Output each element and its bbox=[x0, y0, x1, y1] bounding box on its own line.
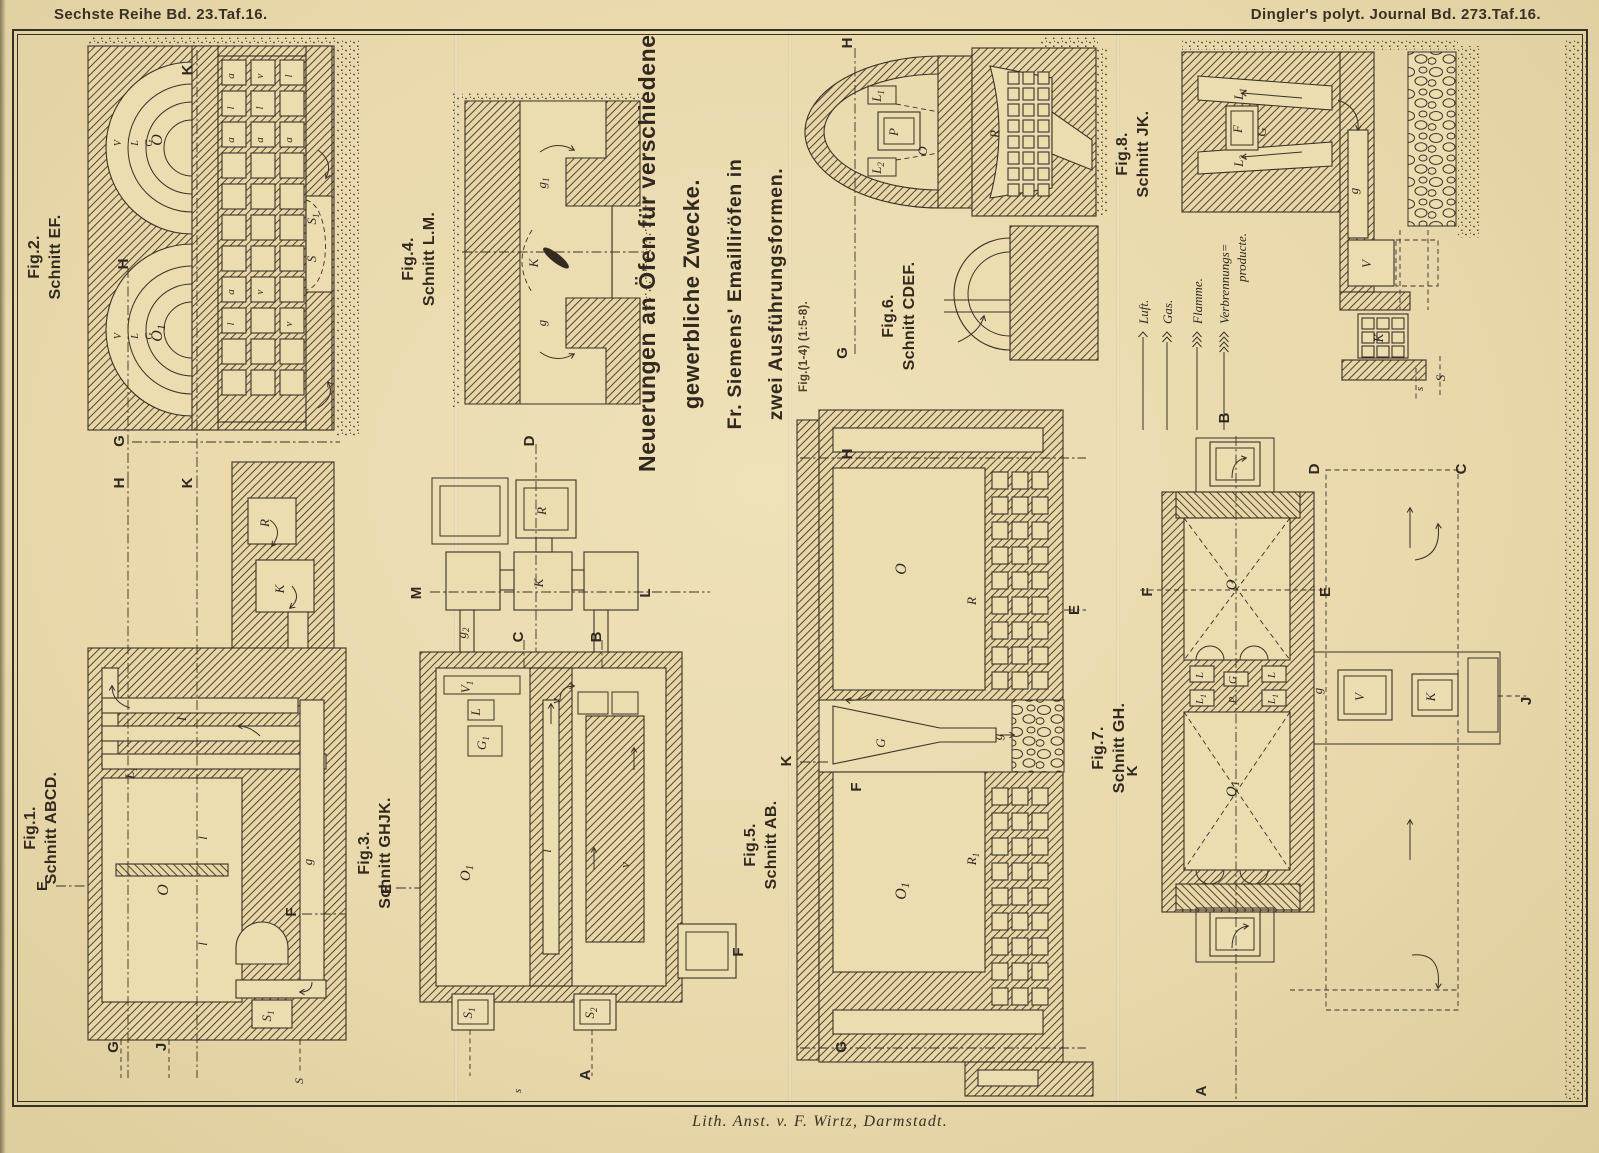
flow-arrow-barb bbox=[1220, 337, 1229, 342]
plate-letter: L bbox=[130, 333, 141, 340]
plate-letter: F bbox=[848, 782, 865, 791]
plate-letter: I bbox=[174, 716, 189, 722]
fig6-label: Fig.6. bbox=[878, 252, 899, 380]
plate-letter: B bbox=[588, 631, 605, 642]
plate-letter: G bbox=[105, 1041, 122, 1053]
checker-grid bbox=[992, 788, 1048, 1005]
plate-letter: g bbox=[1310, 687, 1325, 694]
plate-letter: L1​ bbox=[869, 90, 886, 103]
fig2-section: Schnitt EF. bbox=[45, 192, 66, 322]
plate-letter: a bbox=[283, 137, 295, 143]
plate-letter: a bbox=[225, 73, 237, 79]
plate-letter: D bbox=[1306, 463, 1323, 474]
flow-arrow-barb bbox=[1193, 332, 1202, 337]
plate-letter: C bbox=[1453, 463, 1470, 474]
plate-letter: F bbox=[283, 907, 300, 916]
plate-drawing: Luft.Gas.Flamme.Verbrennungs=producte. K… bbox=[0, 0, 1599, 1153]
plate-letter: K bbox=[778, 755, 795, 766]
fig4-label: Fig.4. bbox=[398, 200, 419, 318]
plate-letter: L bbox=[637, 588, 654, 597]
plate-letter: H bbox=[839, 449, 856, 460]
plate-letter: K bbox=[1423, 691, 1438, 702]
fig8-section: Schnitt JK. bbox=[1133, 98, 1154, 210]
plate-letter: G bbox=[833, 1041, 850, 1053]
plate-letter: a bbox=[225, 137, 237, 143]
legend-label: producte. bbox=[1234, 233, 1249, 283]
flow-arrow-barb bbox=[1193, 342, 1202, 347]
plate-letter: S bbox=[1433, 374, 1448, 381]
flow-arrow-barb bbox=[1139, 332, 1148, 337]
plate-letter: g bbox=[300, 858, 315, 865]
fig3-section: Schnitt GHJK. bbox=[375, 782, 396, 924]
plate-letter: R bbox=[964, 597, 979, 606]
fig1-section: Schnitt ABCD. bbox=[41, 754, 62, 902]
plate-letter: P bbox=[1227, 696, 1239, 704]
legend-label: Gas. bbox=[1160, 300, 1175, 324]
plate-letter: F bbox=[730, 947, 747, 956]
fig6-caption: Fig.6.Schnitt CDEF. bbox=[878, 252, 920, 380]
fig1-label: Fig.1. bbox=[20, 754, 41, 902]
figure-range-note: Fig.(1-4) (1:5-8). bbox=[798, 268, 810, 392]
plate-letter: R bbox=[257, 519, 272, 528]
plate-letter: M bbox=[408, 587, 425, 600]
plate-letter: R bbox=[534, 507, 549, 516]
flow-arrow-barb bbox=[1220, 342, 1229, 347]
plate-letter: s bbox=[1414, 387, 1426, 391]
furnace-chamber bbox=[833, 468, 985, 690]
plate-letter: O bbox=[893, 563, 910, 575]
plate-letter: S bbox=[304, 255, 319, 262]
plate-letter: l bbox=[539, 849, 554, 853]
plate-letter: l bbox=[195, 942, 210, 946]
plate-letter: A bbox=[577, 1069, 594, 1080]
plate-letter: B bbox=[1216, 412, 1233, 423]
plate-title: Neuerungen an Öfen für verschiedene gewe… bbox=[624, 116, 796, 472]
plate-letter: O bbox=[915, 146, 930, 156]
plate-letter: J bbox=[153, 1043, 170, 1051]
fig6-section: Schnitt CDEF. bbox=[899, 252, 920, 380]
plate-letter: G bbox=[1254, 127, 1269, 137]
fig4-caption: Fig.4.Schnitt L.M. bbox=[398, 200, 440, 318]
plate-letter: H bbox=[115, 259, 132, 270]
plate-letter: v bbox=[283, 321, 295, 326]
plate-letter: S bbox=[292, 1078, 306, 1084]
fig8-drawing bbox=[1182, 40, 1480, 400]
fig5-caption: Fig.5.Schnitt AB. bbox=[740, 786, 782, 904]
plate-letter: K bbox=[179, 64, 196, 75]
plate-letter: a bbox=[225, 289, 237, 295]
plate-edge-stipple bbox=[1564, 40, 1586, 1102]
legend-label: Luft. bbox=[1136, 300, 1151, 325]
plate-letter: E bbox=[1317, 587, 1334, 597]
fig7-drawing bbox=[1140, 436, 1526, 1102]
plate-letter: G bbox=[873, 738, 888, 748]
plate-letter: L2​ bbox=[869, 162, 886, 175]
fig7-section: Schnitt GH. bbox=[1109, 688, 1130, 808]
legend-label: Verbrennungs= bbox=[1217, 243, 1232, 324]
legend-label: Flamme. bbox=[1190, 278, 1205, 325]
gas-funnel bbox=[833, 706, 996, 764]
plate-letter: A bbox=[1193, 1085, 1210, 1096]
fig1-caption: Fig.1.Schnitt ABCD. bbox=[20, 754, 62, 902]
fig7-label: Fig.7. bbox=[1088, 688, 1109, 808]
plate-letter: E bbox=[1066, 605, 1083, 615]
cobble-fill bbox=[1012, 700, 1064, 772]
plate-letter: R bbox=[987, 130, 1002, 139]
plate-letter: l bbox=[195, 836, 210, 840]
checker-grid bbox=[992, 472, 1048, 689]
fig6-drawing bbox=[805, 36, 1107, 360]
plate-letter: D bbox=[521, 435, 538, 446]
plate-letter: G bbox=[111, 435, 128, 447]
plate-letter: H bbox=[839, 38, 856, 49]
plate-letter: a bbox=[254, 137, 266, 143]
plate-letter: L bbox=[1194, 672, 1206, 679]
plate-letter: G bbox=[834, 347, 851, 359]
plate-letter: l bbox=[254, 106, 266, 109]
plate-title-line1: Neuerungen an Öfen für verschiedene bbox=[624, 116, 670, 472]
plate-letter: L bbox=[130, 140, 141, 147]
fig5-section: Schnitt AB. bbox=[761, 786, 782, 904]
flow-arrow-barb bbox=[1193, 337, 1202, 342]
plate-letter: F bbox=[1230, 124, 1245, 134]
plate-letter: g bbox=[534, 319, 549, 326]
fig3-drawing bbox=[396, 444, 736, 1076]
plate-letter: g bbox=[1346, 187, 1361, 194]
furnace-chamber bbox=[102, 778, 242, 1002]
plate-letter: O bbox=[155, 884, 172, 896]
flow-arrow-barb bbox=[1163, 337, 1172, 342]
plate-letter: v bbox=[254, 289, 266, 294]
fig5-drawing bbox=[797, 410, 1093, 1096]
fig5-label: Fig.5. bbox=[740, 786, 761, 904]
plate-letter: K bbox=[1371, 332, 1386, 343]
fig2-caption: Fig.2.Schnitt EF. bbox=[24, 192, 66, 322]
plate-letter: G bbox=[144, 139, 155, 146]
plate-letter: l bbox=[225, 106, 237, 109]
plate-letter: H bbox=[111, 478, 128, 489]
plate-letter: L bbox=[468, 708, 483, 716]
plate-letter: l bbox=[225, 322, 237, 325]
fig8-label: Fig.8. bbox=[1112, 98, 1133, 210]
plate-sheet: Sechste Reihe Bd. 23.Taf.16. Dingler's p… bbox=[0, 0, 1599, 1153]
plate-letter: P bbox=[886, 128, 901, 137]
fig1-drawing bbox=[56, 462, 346, 1078]
fig7-caption: Fig.7.Schnitt GH. bbox=[1088, 688, 1130, 808]
fig2-drawing bbox=[88, 36, 360, 478]
plate-letter: l bbox=[283, 74, 295, 77]
plate-letter: G bbox=[1227, 676, 1239, 684]
plate-letter: G bbox=[144, 332, 155, 339]
plate-letter: v bbox=[617, 862, 632, 868]
fig3-caption: Fig.3.Schnitt GHJK. bbox=[354, 782, 396, 924]
plate-letter: g2​ bbox=[454, 627, 471, 639]
plate-letter: s bbox=[512, 1089, 524, 1093]
fig3-label: Fig.3. bbox=[354, 782, 375, 924]
plate-letter: K bbox=[526, 257, 541, 268]
plate-letter: v bbox=[548, 698, 563, 704]
plate-letter: K bbox=[272, 583, 287, 594]
flow-arrow-barb bbox=[1220, 347, 1229, 352]
plate-letter: K bbox=[531, 577, 546, 588]
plate-letter: F bbox=[1139, 587, 1156, 596]
plate-letter: L bbox=[1266, 672, 1278, 679]
lithographer-credit: Lith. Anst. v. F. Wirtz, Darmstadt. bbox=[500, 1113, 1140, 1131]
plate-title-line4: zwei Ausführungsformen. bbox=[756, 116, 796, 472]
cobble-fill bbox=[1408, 52, 1456, 226]
plate-letter: v bbox=[254, 73, 266, 78]
plate-letter: C bbox=[510, 631, 527, 642]
furnace-chamber bbox=[833, 772, 985, 972]
flow-arrow-barb bbox=[1220, 332, 1229, 337]
plate-letter: g bbox=[990, 733, 1005, 740]
plate-letter: K bbox=[179, 477, 196, 488]
flow-arrow-barb bbox=[1163, 332, 1172, 337]
plate-title-line3: Fr. Siemens' Emailliröfen in bbox=[714, 116, 756, 472]
fig4-drawing bbox=[452, 92, 653, 408]
legend: Luft.Gas.Flamme.Verbrennungs=producte. bbox=[1136, 233, 1249, 430]
fig2-label: Fig.2. bbox=[24, 192, 45, 322]
plate-letter: O bbox=[1224, 579, 1240, 590]
fig8-caption: Fig.8.Schnitt JK. bbox=[1112, 98, 1154, 210]
plate-title-line2: gewerbliche Zwecke. bbox=[670, 116, 714, 472]
plate-letter: J bbox=[1518, 697, 1535, 705]
fig4-section: Schnitt L.M. bbox=[419, 200, 440, 318]
